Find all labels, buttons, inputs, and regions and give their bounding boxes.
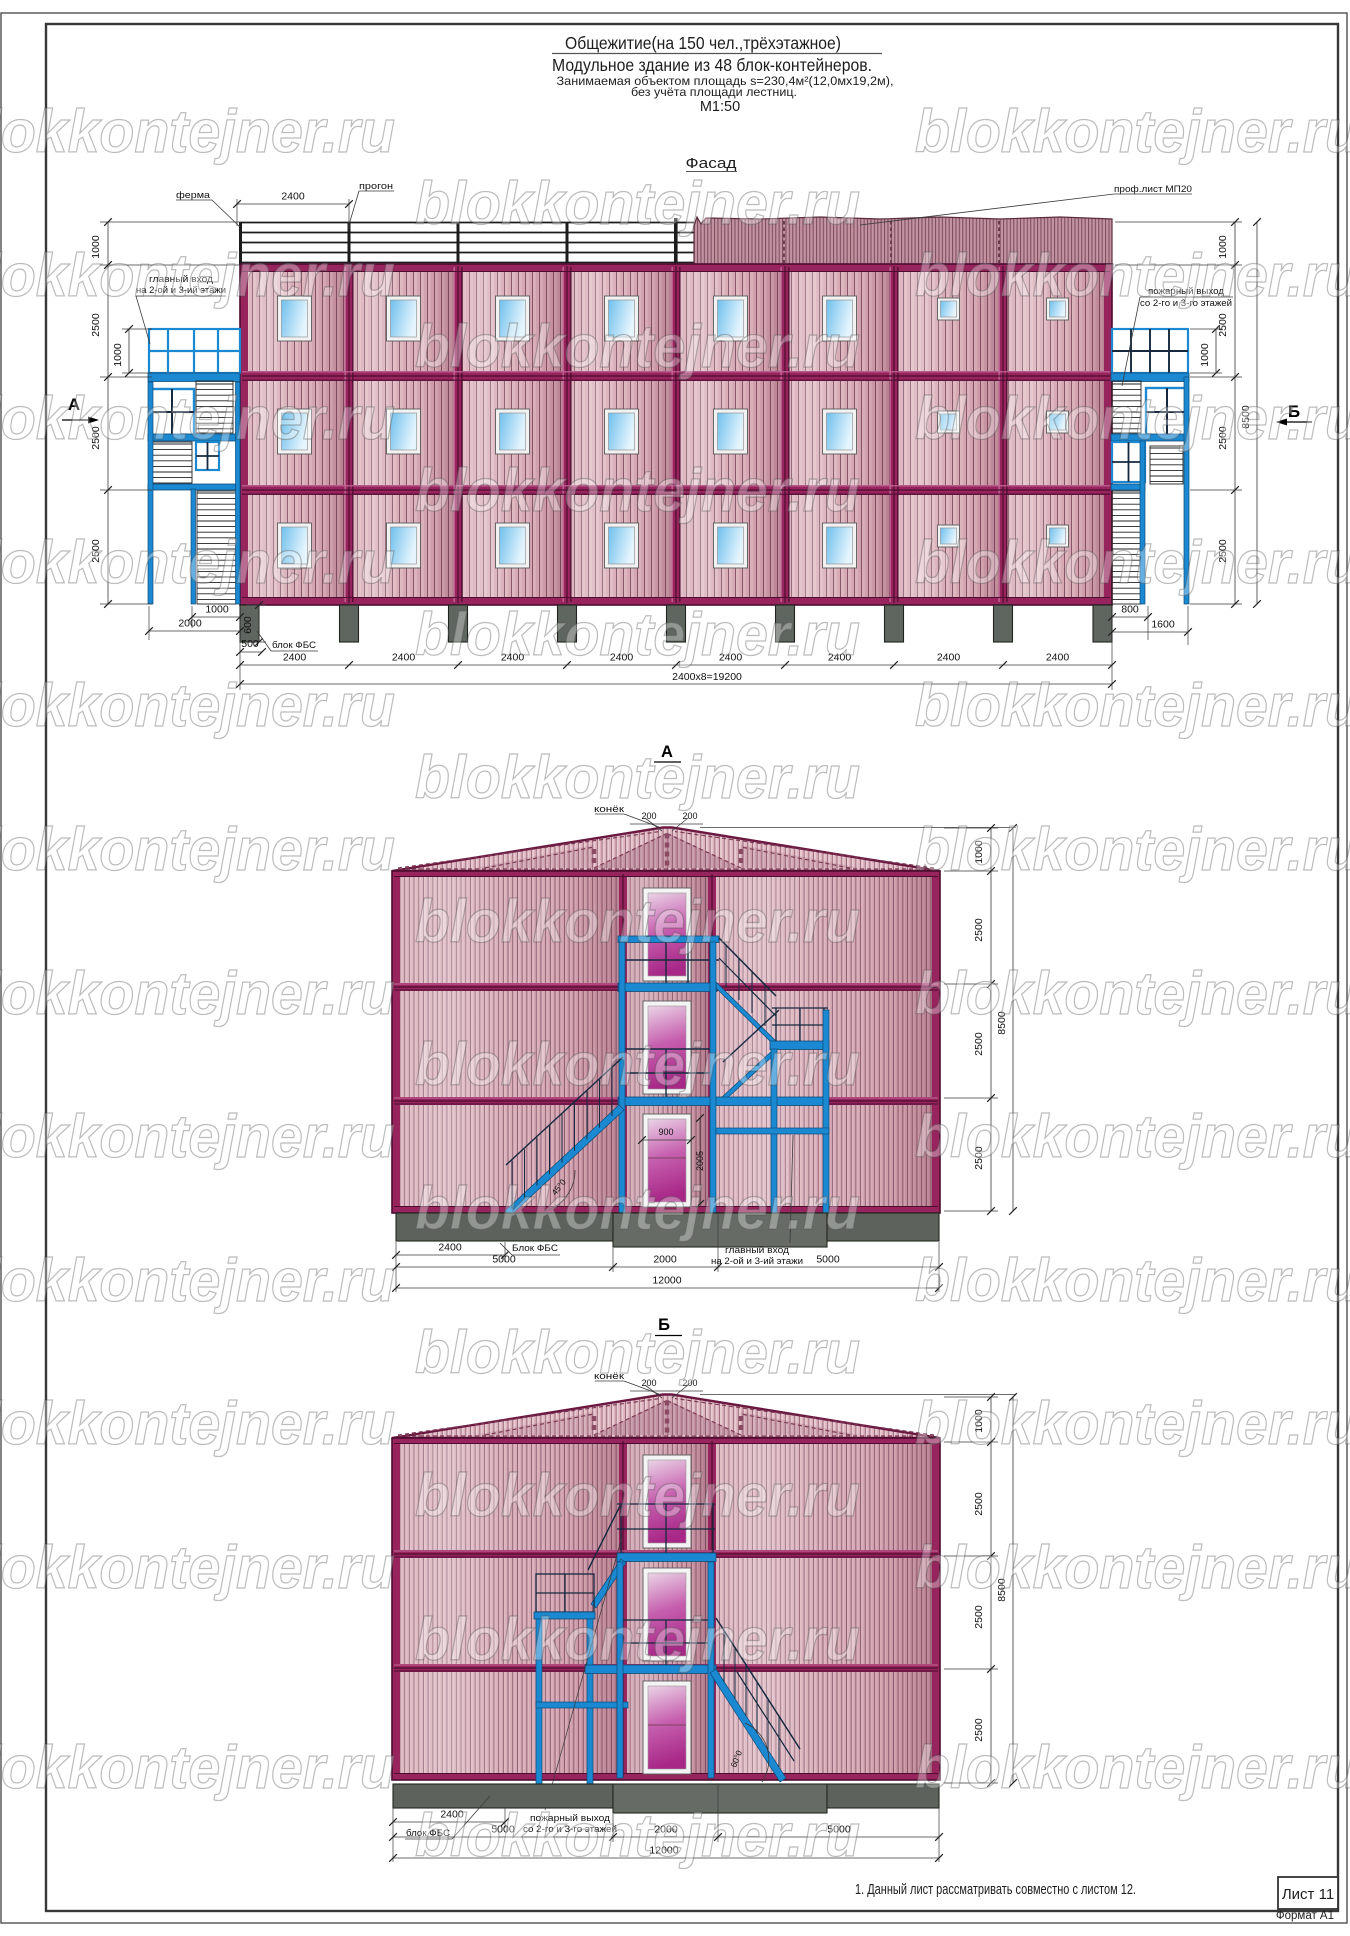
svg-text:blokkontejner.ru: blokkontejner.ru	[415, 601, 860, 668]
svg-text:blokkontejner.ru: blokkontejner.ru	[415, 1802, 860, 1869]
svg-text:2500: 2500	[973, 1605, 985, 1629]
svg-text:2500: 2500	[973, 918, 985, 942]
svg-text:blokkontejner.ru: blokkontejner.ru	[915, 529, 1350, 596]
svg-text:Блок ФБС: Блок ФБС	[512, 1243, 559, 1253]
svg-text:blokkontejner.ru: blokkontejner.ru	[0, 1534, 395, 1601]
svg-text:blokkontejner.ru: blokkontejner.ru	[915, 1103, 1350, 1170]
svg-text:М1:50: М1:50	[700, 99, 740, 115]
svg-text:2400: 2400	[392, 652, 416, 664]
svg-text:2400: 2400	[438, 1242, 462, 1254]
svg-text:800: 800	[1121, 604, 1139, 616]
svg-text:5000: 5000	[816, 1254, 840, 1266]
svg-text:blokkontejner.ru: blokkontejner.ru	[415, 170, 860, 237]
svg-text:2400: 2400	[281, 191, 305, 203]
svg-text:blokkontejner.ru: blokkontejner.ru	[0, 816, 395, 883]
svg-text:blokkontejner.ru: blokkontejner.ru	[0, 1734, 395, 1801]
svg-text:1000: 1000	[112, 343, 124, 367]
svg-text:900: 900	[658, 1127, 673, 1137]
svg-text:2400: 2400	[1046, 652, 1070, 664]
svg-text:прогон: прогон	[359, 181, 393, 191]
svg-text:blokkontejner.ru: blokkontejner.ru	[415, 1606, 860, 1673]
svg-text:ферма: ферма	[176, 190, 210, 200]
svg-text:2400х8=19200: 2400х8=19200	[672, 671, 742, 683]
svg-text:blokkontejner.ru: blokkontejner.ru	[0, 960, 395, 1027]
svg-text:проф.лист МП20: проф.лист МП20	[1114, 184, 1192, 194]
svg-text:blokkontejner.ru: blokkontejner.ru	[915, 960, 1350, 1027]
svg-text:blokkontejner.ru: blokkontejner.ru	[915, 1534, 1350, 1601]
svg-text:blokkontejner.ru: blokkontejner.ru	[915, 816, 1350, 883]
svg-text:blokkontejner.ru: blokkontejner.ru	[0, 1247, 395, 1314]
svg-text:2000: 2000	[653, 1254, 677, 1266]
svg-text:blokkontejner.ru: blokkontejner.ru	[415, 1031, 860, 1098]
svg-text:5000: 5000	[492, 1254, 516, 1266]
svg-text:без учёта площади лестниц.: без учёта площади лестниц.	[631, 85, 797, 99]
svg-text:на 2-ой и 3-ий этажи: на 2-ой и 3-ий этажи	[711, 1256, 803, 1266]
svg-text:главный вход: главный вход	[725, 1245, 789, 1255]
svg-text:blokkontejner.ru: blokkontejner.ru	[415, 1175, 860, 1242]
svg-text:2005: 2005	[695, 1151, 705, 1171]
svg-text:500: 500	[241, 638, 259, 650]
svg-text:Общежитие(на 150 чел.,трёхэтаж: Общежитие(на 150 чел.,трёхэтажное)	[565, 33, 841, 53]
svg-text:blokkontejner.ru: blokkontejner.ru	[415, 888, 860, 955]
svg-text:blokkontejner.ru: blokkontejner.ru	[415, 744, 860, 811]
svg-text:200: 200	[682, 811, 697, 821]
svg-text:blokkontejner.ru: blokkontejner.ru	[915, 242, 1350, 309]
svg-text:12000: 12000	[652, 1275, 681, 1287]
svg-text:blokkontejner.ru: blokkontejner.ru	[0, 529, 395, 596]
svg-text:блок ФБС: блок ФБС	[272, 640, 317, 650]
svg-text:2000: 2000	[178, 618, 202, 630]
svg-text:blokkontejner.ru: blokkontejner.ru	[915, 1390, 1350, 1457]
svg-text:600: 600	[242, 616, 254, 634]
svg-text:blokkontejner.ru: blokkontejner.ru	[915, 385, 1350, 452]
svg-text:1600: 1600	[1151, 619, 1175, 631]
svg-text:2500: 2500	[973, 1032, 985, 1056]
svg-text:Модульное здание из 48 блок-к: Модульное здание из 48 блок-контейнеров.	[552, 55, 872, 75]
svg-text:blokkontejner.ru: blokkontejner.ru	[415, 1462, 860, 1529]
svg-text:200: 200	[641, 811, 656, 821]
svg-text:blokkontejner.ru: blokkontejner.ru	[415, 457, 860, 524]
svg-text:Лист 11: Лист 11	[1282, 1886, 1334, 1903]
svg-text:1. Данный лист рассматривать с: 1. Данный лист рассматривать совместно с…	[855, 1881, 1136, 1898]
svg-text:blokkontejner.ru: blokkontejner.ru	[415, 313, 860, 380]
svg-text:blokkontejner.ru: blokkontejner.ru	[0, 672, 395, 739]
svg-text:blokkontejner.ru: blokkontejner.ru	[415, 1319, 860, 1386]
svg-text:blokkontejner.ru: blokkontejner.ru	[915, 98, 1350, 165]
svg-text:blokkontejner.ru: blokkontejner.ru	[0, 242, 395, 309]
svg-text:blokkontejner.ru: blokkontejner.ru	[0, 1390, 395, 1457]
svg-text:blokkontejner.ru: blokkontejner.ru	[0, 98, 395, 165]
svg-text:blokkontejner.ru: blokkontejner.ru	[0, 1103, 395, 1170]
svg-text:blokkontejner.ru: blokkontejner.ru	[915, 672, 1350, 739]
svg-text:2500: 2500	[973, 1492, 985, 1516]
svg-text:2500: 2500	[1217, 313, 1229, 337]
svg-text:2500: 2500	[90, 313, 102, 337]
svg-text:2400: 2400	[283, 652, 307, 664]
svg-text:blokkontejner.ru: blokkontejner.ru	[915, 1734, 1350, 1801]
svg-text:2400: 2400	[937, 652, 961, 664]
svg-text:blokkontejner.ru: blokkontejner.ru	[0, 385, 395, 452]
svg-text:blokkontejner.ru: blokkontejner.ru	[915, 1247, 1350, 1314]
svg-text:Формат А1: Формат А1	[1276, 1910, 1334, 1922]
svg-text:1000: 1000	[1199, 343, 1211, 367]
svg-text:1000: 1000	[205, 604, 229, 616]
